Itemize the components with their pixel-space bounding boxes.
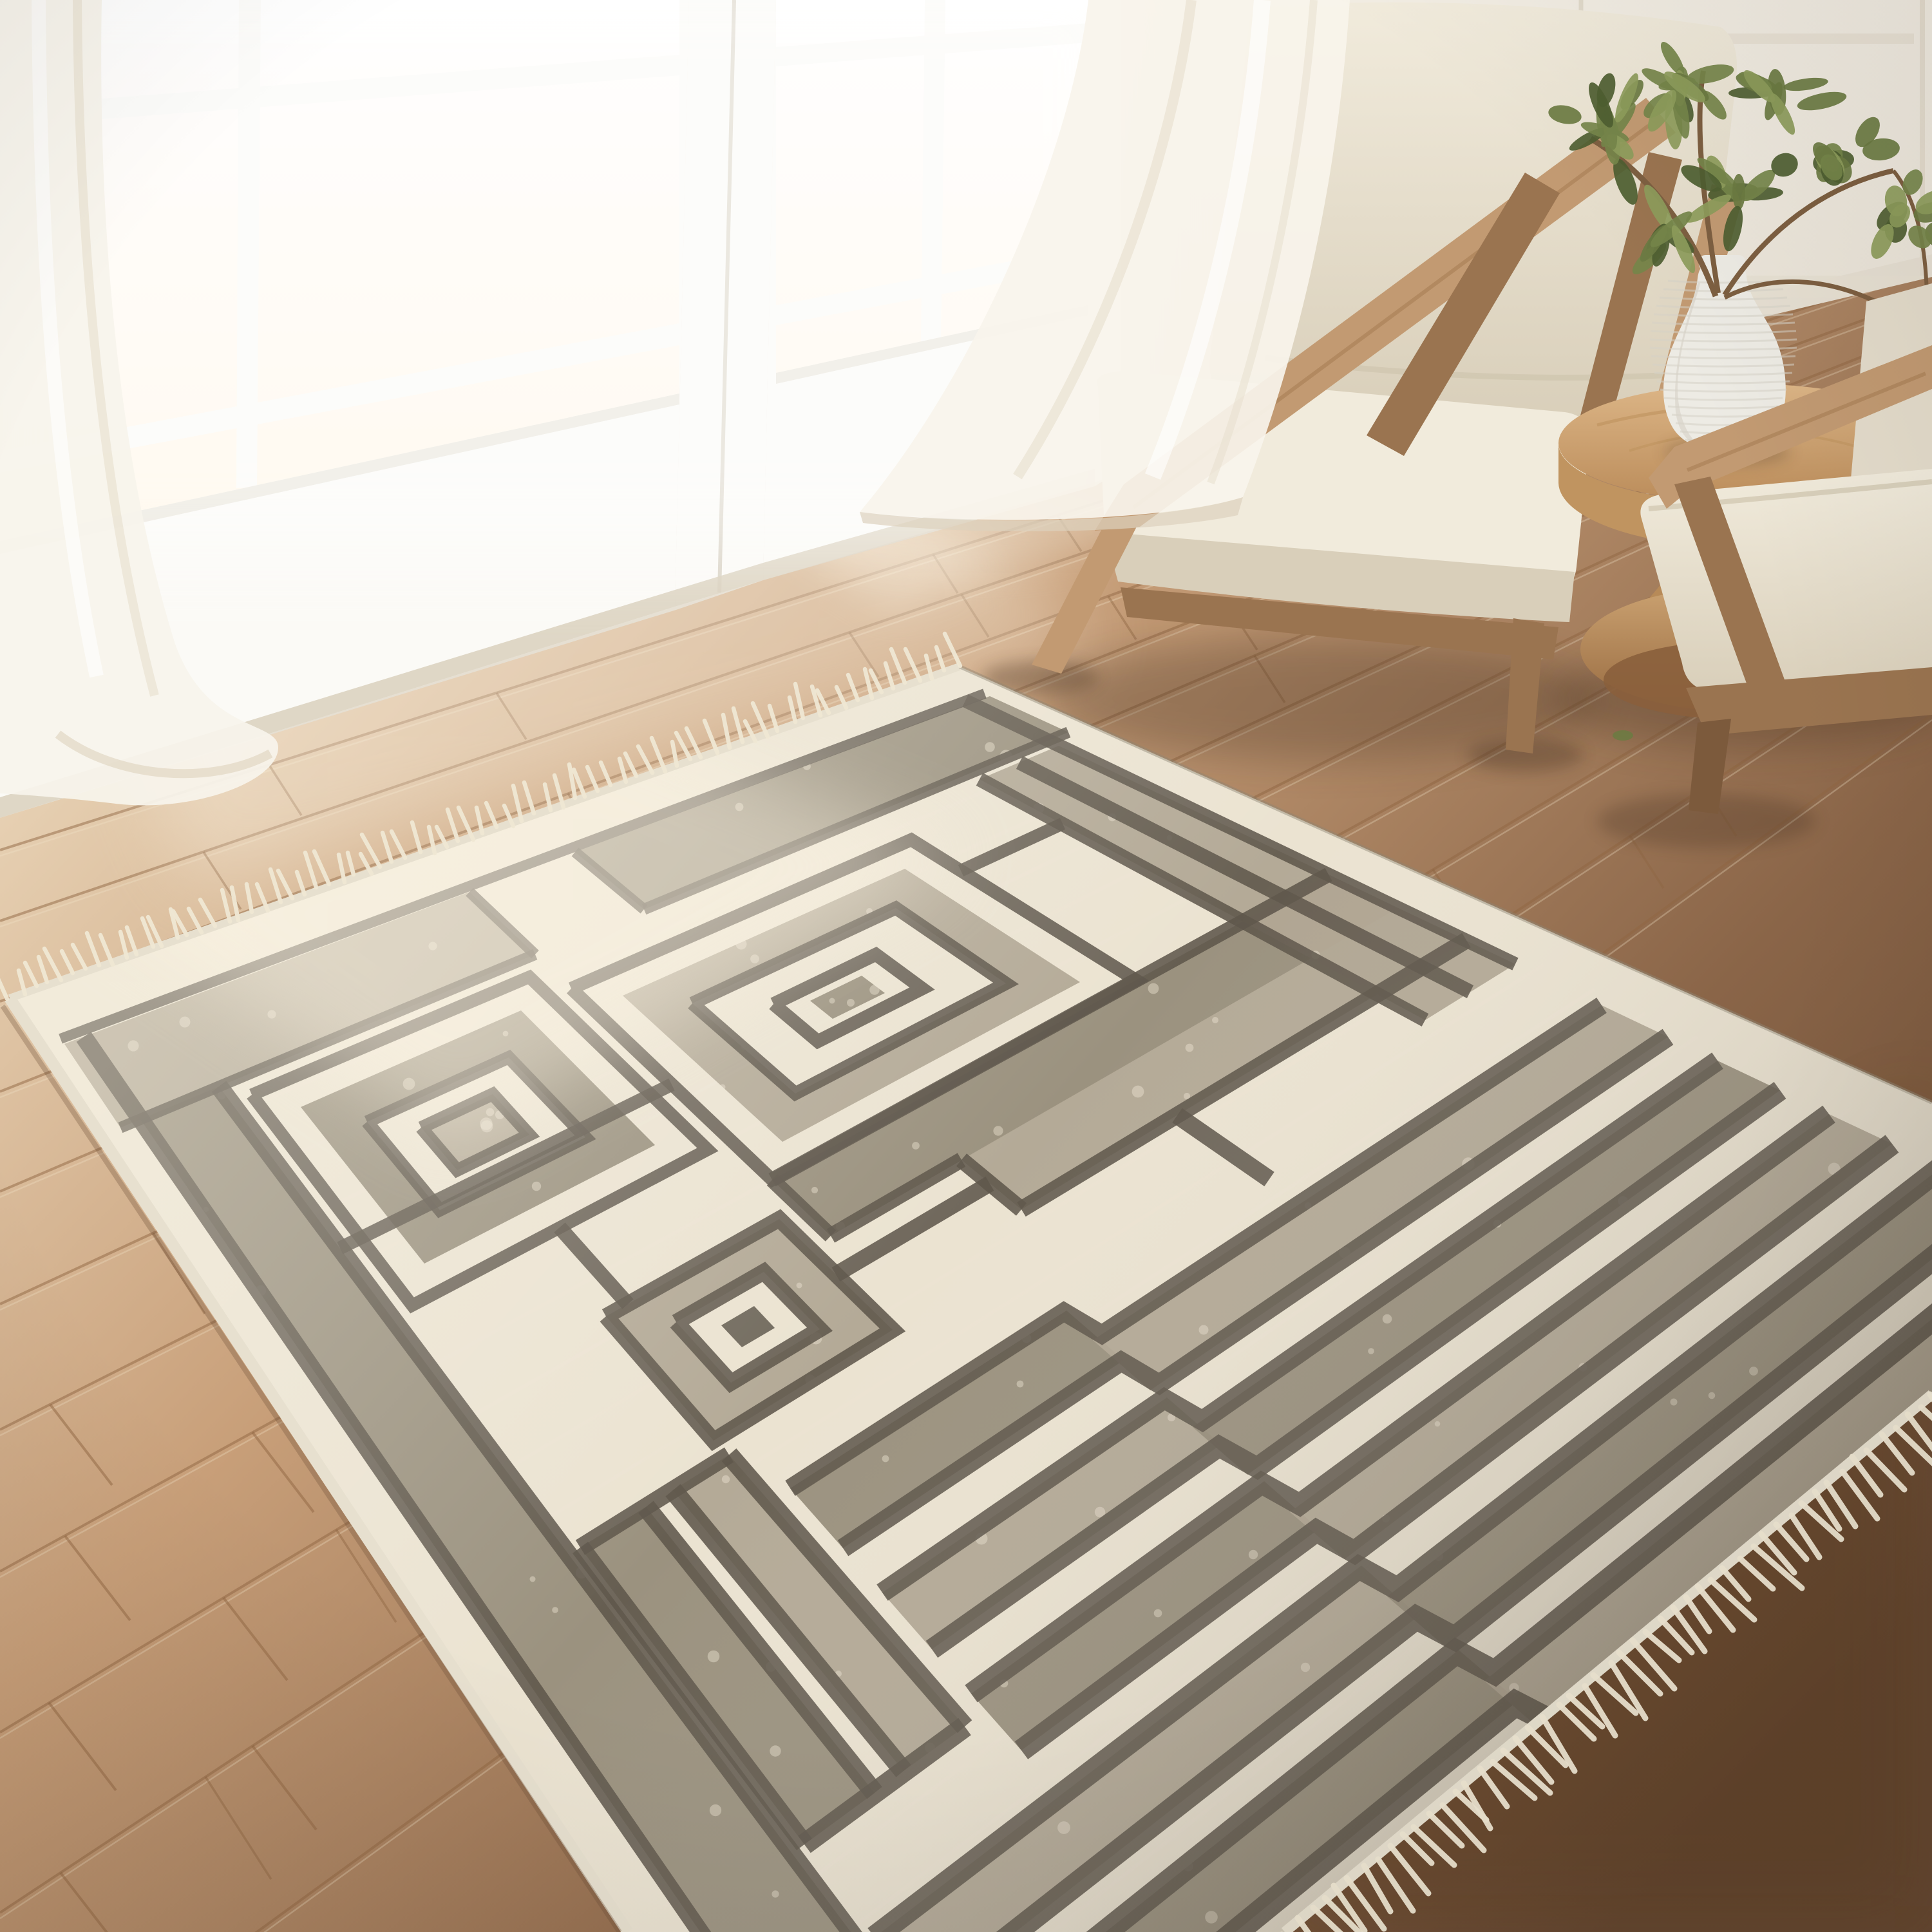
scene-canvas [0,0,1932,1932]
vignette [0,0,1932,1932]
living-room-photo [0,0,1932,1932]
